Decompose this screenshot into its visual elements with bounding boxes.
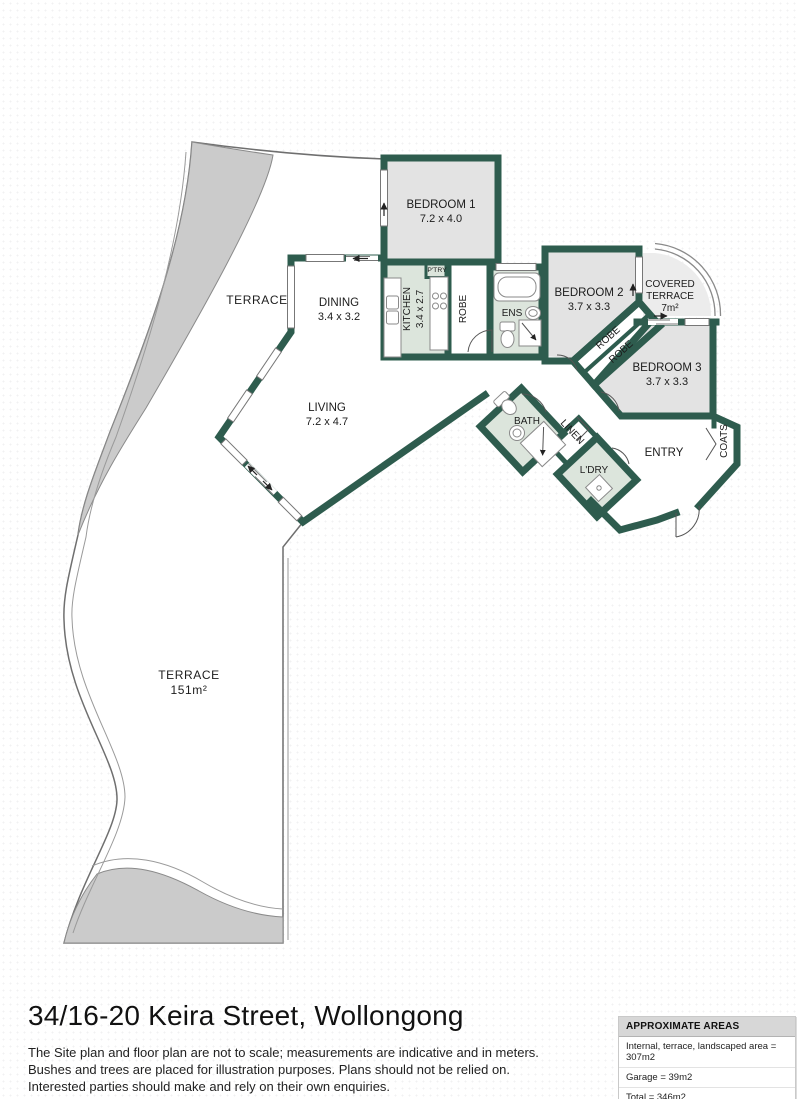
label-laundry: L'DRY [580, 465, 609, 476]
room-robe-bed1 [448, 262, 490, 357]
label-bedroom1-dims: 7.2 x 4.0 [420, 213, 462, 225]
label-ens: ENS [502, 308, 523, 319]
window-terrace-south [685, 319, 709, 326]
label-dining: DINING [319, 297, 359, 309]
label-bedroom3-dims: 3.7 x 3.3 [646, 376, 688, 388]
kitchen-counter-right [430, 277, 448, 350]
areas-box-header: APPROXIMATE AREAS [619, 1017, 795, 1037]
label-living: LIVING [308, 402, 346, 414]
floorplan-drawing: BEDROOM 1 7.2 x 4.0 BEDROOM 2 3.7 x 3.3 … [0, 0, 800, 990]
ens-sink-icon [526, 307, 541, 320]
slider-covered-terrace [648, 319, 678, 325]
label-terrace-lower: TERRACE [158, 668, 220, 682]
bath-sink-icon [510, 426, 525, 441]
label-pantry: P'TRY [427, 267, 447, 274]
window-ensuite-north [496, 264, 536, 271]
disclaimer-line: The Site plan and floor plan are not to … [28, 1044, 588, 1061]
disclaimer-line: Bushes and trees are placed for illustra… [28, 1061, 588, 1078]
label-dining-dims: 3.4 x 3.2 [318, 311, 360, 323]
areas-row-garage: Garage = 39m2 [619, 1068, 795, 1088]
ens-toilet-icon [500, 322, 515, 348]
label-terrace-lower-area: 151m² [170, 683, 207, 697]
label-kitchen-dims: 3.4 x 2.7 [415, 289, 426, 328]
label-living-dims: 7.2 x 4.7 [306, 416, 348, 428]
label-bath: BATH [514, 416, 540, 427]
kitchen-sink-icon [387, 311, 399, 324]
window-dining-west [288, 266, 295, 328]
window-bedroom1-west [381, 170, 388, 226]
disclaimer: The Site plan and floor plan are not to … [28, 1044, 588, 1095]
window-bedroom2-east [636, 257, 643, 293]
page-title: 34/16-20 Keira Street, Wollongong [28, 1000, 588, 1032]
label-bedroom2: BEDROOM 2 [554, 287, 623, 299]
window-dining-north [306, 255, 344, 262]
kitchen-sink-icon [387, 296, 399, 309]
areas-row-total: Total = 346m2 [619, 1088, 795, 1099]
approximate-areas-box: APPROXIMATE AREAS Internal, terrace, lan… [618, 1016, 796, 1099]
title-block: 34/16-20 Keira Street, Wollongong The Si… [28, 1000, 588, 1095]
label-robe-bed1: ROBE [458, 295, 469, 324]
label-terrace-upper: TERRACE [226, 293, 288, 307]
label-bedroom3: BEDROOM 3 [632, 362, 701, 374]
ens-shower-icon [519, 320, 541, 346]
label-covered-terrace-1: COVERED [645, 279, 694, 290]
areas-row-internal: Internal, terrace, landscaped area = 307… [619, 1037, 795, 1068]
label-entry: ENTRY [645, 447, 684, 459]
label-kitchen: KITCHEN [402, 287, 413, 331]
bathtub-icon [494, 273, 540, 301]
label-bedroom2-dims: 3.7 x 3.3 [568, 301, 610, 313]
label-covered-terrace-area: 7m² [661, 303, 679, 314]
floorplan-page: BEDROOM 1 7.2 x 4.0 BEDROOM 2 3.7 x 3.3 … [0, 0, 800, 1099]
label-bedroom1: BEDROOM 1 [406, 199, 475, 211]
label-covered-terrace-2: TERRACE [646, 291, 694, 302]
label-coats: COATS [719, 424, 730, 458]
disclaimer-line: Interested parties should make and rely … [28, 1078, 588, 1095]
